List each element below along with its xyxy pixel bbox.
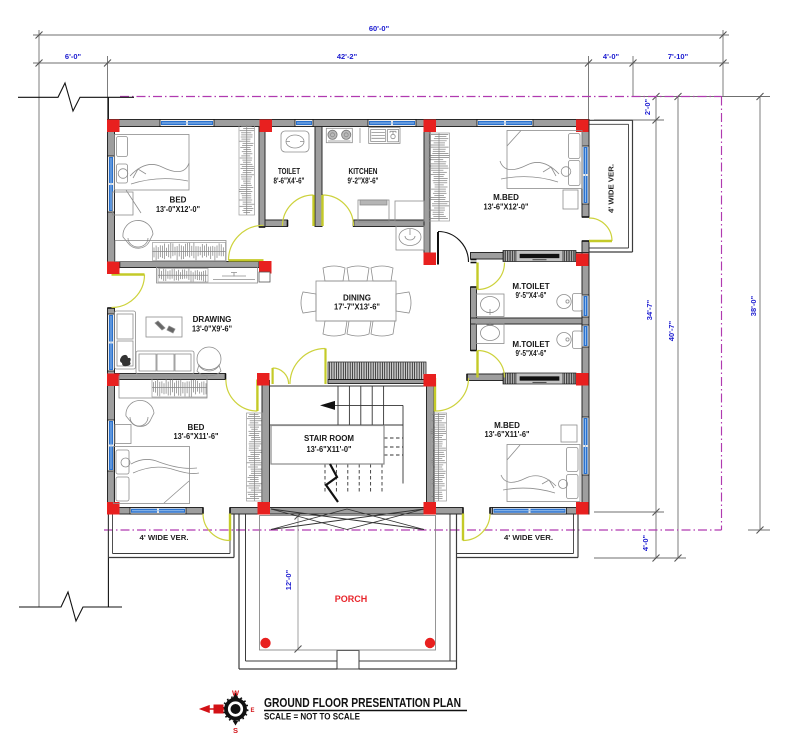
svg-text:12'-0": 12'-0": [284, 569, 293, 590]
svg-text:4' WIDE VER.: 4' WIDE VER.: [607, 164, 616, 213]
svg-text:13'-6"X11'-6": 13'-6"X11'-6": [174, 432, 219, 441]
svg-text:13'-6"X11'-0": 13'-6"X11'-0": [307, 445, 352, 454]
svg-text:34'-7": 34'-7": [645, 299, 654, 320]
svg-text:M.TOILET: M.TOILET: [512, 282, 549, 291]
svg-text:M.BED: M.BED: [494, 421, 520, 430]
svg-text:13'-0"X12'-0": 13'-0"X12'-0": [156, 205, 200, 214]
svg-text:KITCHEN: KITCHEN: [349, 167, 378, 176]
svg-text:BED: BED: [170, 196, 187, 205]
svg-text:60'-0": 60'-0": [369, 24, 390, 33]
svg-text:40'-7": 40'-7": [667, 320, 676, 341]
svg-text:GROUND FLOOR PRESENTATION PLAN: GROUND FLOOR PRESENTATION PLAN: [264, 695, 461, 710]
svg-text:9'-5"X4'-6": 9'-5"X4'-6": [516, 291, 547, 300]
svg-text:E: E: [250, 708, 254, 714]
svg-text:PORCH: PORCH: [335, 594, 368, 604]
svg-text:9'-5"X4'-6": 9'-5"X4'-6": [516, 349, 547, 358]
svg-text:M.TOILET: M.TOILET: [512, 340, 549, 349]
svg-text:17'-7"X13'-6": 17'-7"X13'-6": [334, 303, 380, 312]
svg-text:DINING: DINING: [343, 294, 371, 303]
svg-text:DRAWING: DRAWING: [193, 315, 232, 324]
svg-text:4'-0": 4'-0": [603, 52, 620, 61]
svg-text:42'-2": 42'-2": [337, 52, 358, 61]
svg-text:13'-0"X9'-6": 13'-0"X9'-6": [192, 325, 232, 334]
svg-text:4' WIDE VER.: 4' WIDE VER.: [504, 533, 553, 542]
svg-text:STAIR ROOM: STAIR ROOM: [304, 434, 354, 443]
svg-text:8'-6"X4'-6": 8'-6"X4'-6": [274, 177, 305, 186]
svg-text:6'-0": 6'-0": [65, 52, 82, 61]
svg-text:9'-2"X8'-6": 9'-2"X8'-6": [348, 177, 379, 186]
svg-text:4' WIDE VER.: 4' WIDE VER.: [140, 533, 189, 542]
svg-text:SCALE = NOT TO SCALE: SCALE = NOT TO SCALE: [264, 712, 360, 722]
svg-text:M.BED: M.BED: [493, 193, 519, 202]
svg-text:13'-6"X11'-6": 13'-6"X11'-6": [485, 430, 530, 439]
svg-text:2'-0": 2'-0": [643, 98, 652, 115]
svg-text:W: W: [232, 689, 240, 698]
svg-text:S: S: [233, 726, 238, 735]
svg-text:BED: BED: [188, 423, 205, 432]
svg-text:13'-6"X12'-0": 13'-6"X12'-0": [484, 203, 529, 212]
svg-text:7'-10": 7'-10": [668, 52, 689, 61]
svg-text:4'-0": 4'-0": [641, 534, 650, 551]
svg-text:38'-0": 38'-0": [749, 295, 758, 316]
svg-text:TOILET: TOILET: [278, 167, 300, 176]
